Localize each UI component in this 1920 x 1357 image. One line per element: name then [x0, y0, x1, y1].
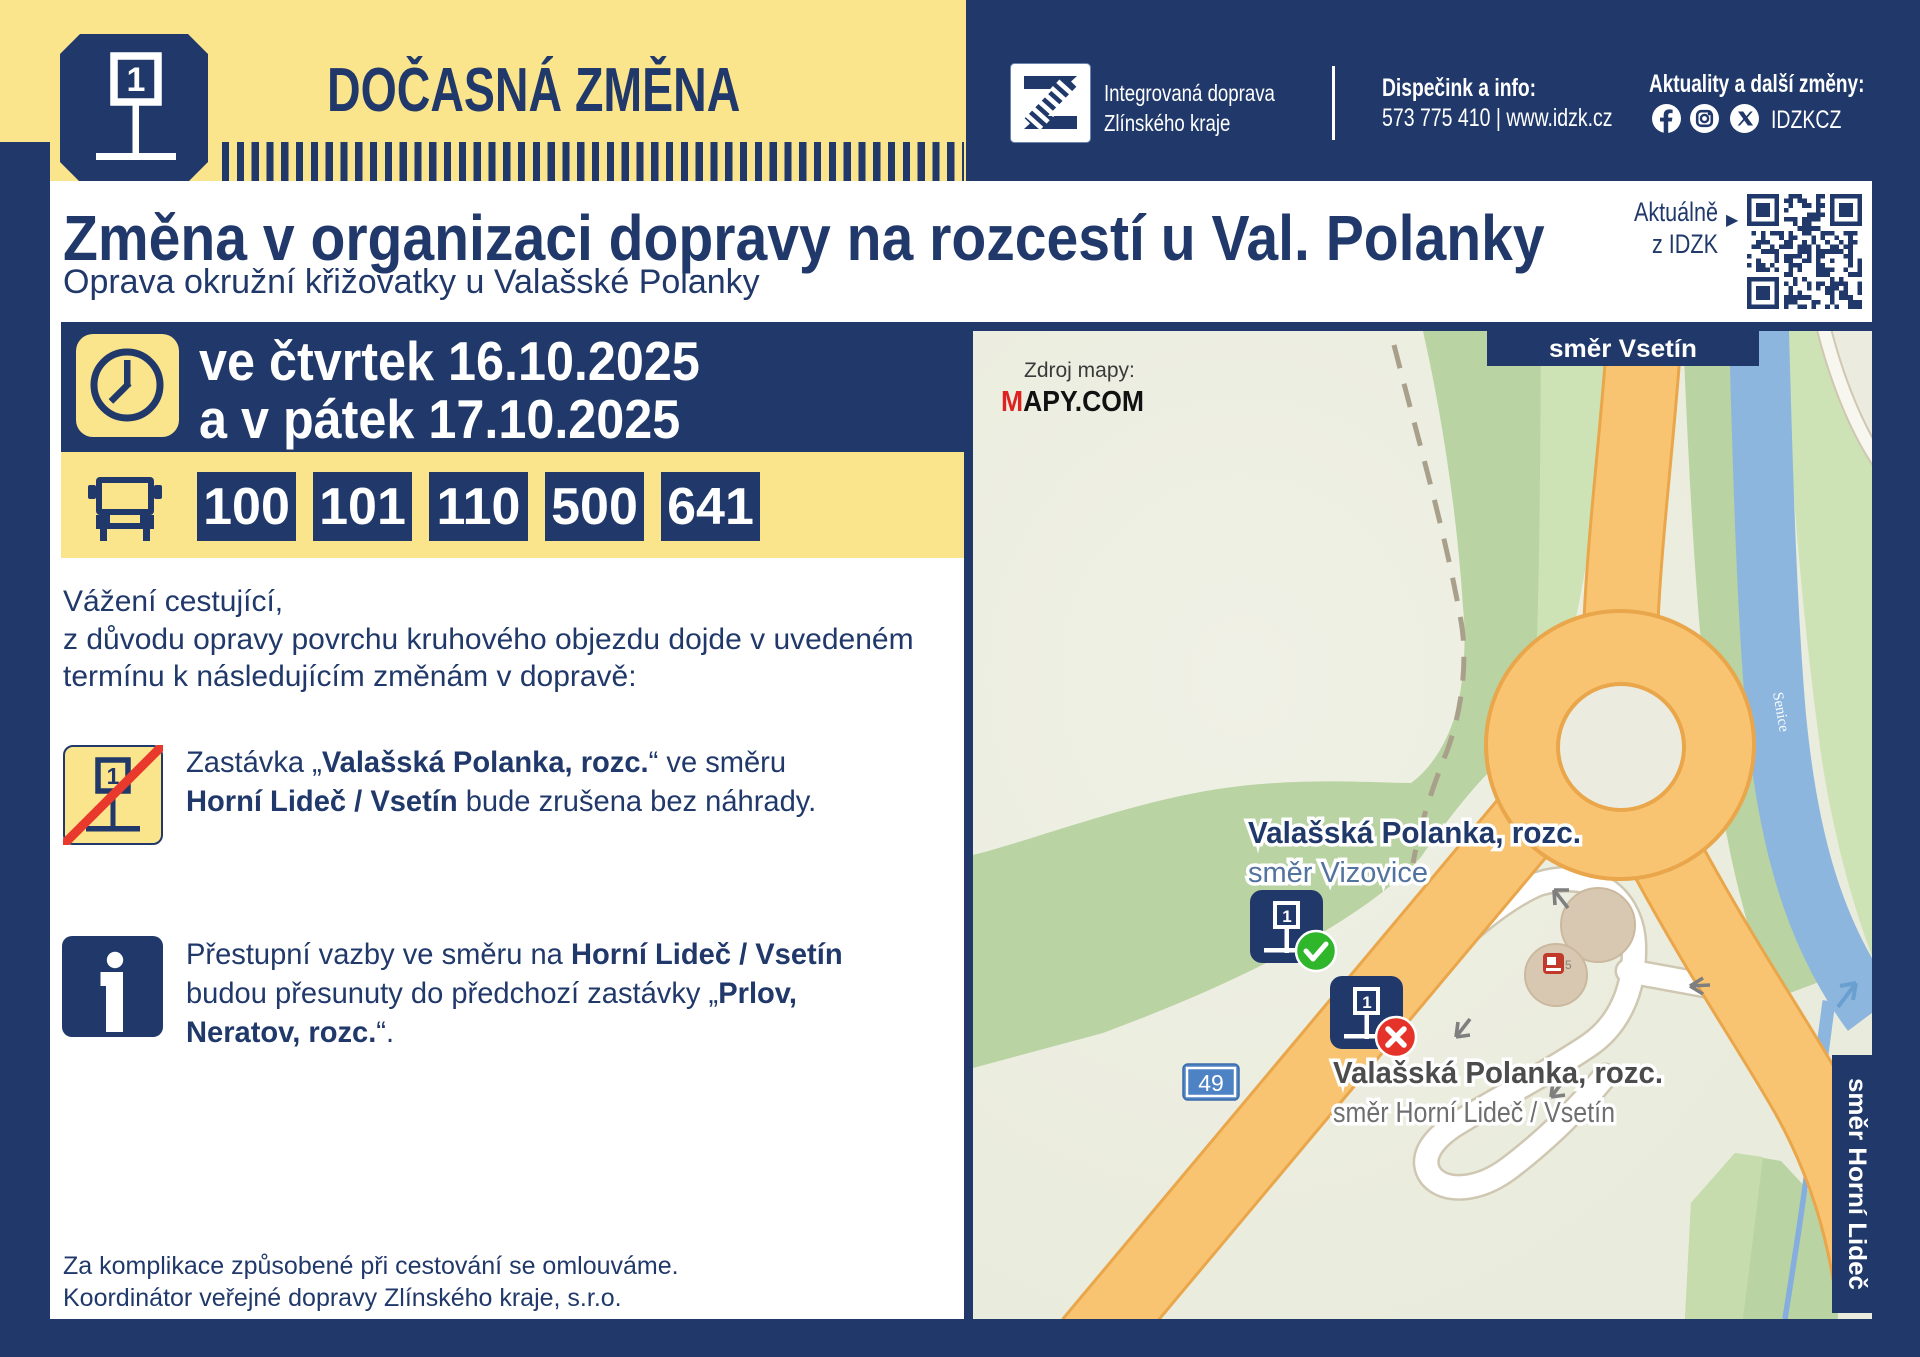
- svg-text:Valašská Polanka, rozc.: Valašská Polanka, rozc.: [1248, 815, 1581, 850]
- svg-text:Zdroj mapy:: Zdroj mapy:: [1024, 359, 1135, 382]
- svg-text:směr Vsetín: směr Vsetín: [1549, 335, 1697, 363]
- svg-text:49: 49: [1198, 1070, 1224, 1096]
- svg-text:MAPY.COM: MAPY.COM: [1001, 386, 1144, 418]
- svg-text:1: 1: [1282, 907, 1291, 926]
- svg-text:1: 1: [1362, 993, 1371, 1012]
- svg-text:5: 5: [1565, 958, 1572, 972]
- svg-text:směr Horní Lideč: směr Horní Lideč: [1843, 1078, 1871, 1290]
- svg-text:směr Horní Lideč / Vsetín: směr Horní Lideč / Vsetín: [1333, 1097, 1615, 1129]
- svg-text:Valašská Polanka, rozc.: Valašská Polanka, rozc.: [1333, 1055, 1663, 1090]
- svg-text:směr Vizovice: směr Vizovice: [1248, 857, 1428, 889]
- svg-text:1: 1: [127, 61, 146, 99]
